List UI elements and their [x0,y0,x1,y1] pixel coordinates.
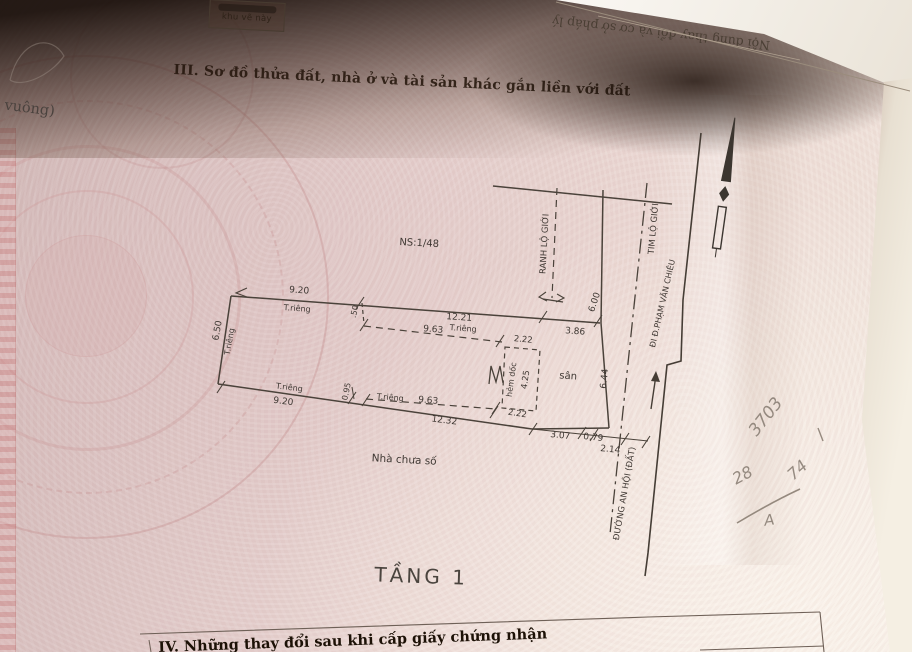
road-direction-label: ĐI Đ.PHẠM VĂN CHIÊU [646,258,678,348]
direction-arrow-shaft [651,375,656,409]
yard-bottom-edge [532,428,609,429]
road-edge-line [645,133,701,576]
section-iii-heading: III. Sơ đồ thửa đất, nhà ở và tài sản kh… [173,62,773,106]
boundary-to-road [532,429,648,441]
floor-caption: TẦNG 1 [373,561,468,589]
facing-page-white-edge [0,0,912,140]
emblem-watermark-ring [0,145,241,451]
emblem-watermark-core [25,235,147,357]
private-label-left: T.riêng [222,327,237,356]
dim-to-road-edge: 2.14 [600,444,621,456]
emblem-watermark-ring [70,0,254,169]
dim-top-seg2: 12.21 [446,312,472,324]
table-right-border [820,612,824,652]
dim-left-side: 6.50 [211,320,224,342]
paper-background [0,0,912,652]
certificate-photo: III. Sơ đồ thửa đất, nhà ở và tài sản kh… [0,0,912,652]
road-name-label: ĐƯỜNG AN HỘI (ĐẤT) [610,446,638,541]
photo-right-shadow [470,6,912,156]
road-boundary-end-bar [543,299,563,302]
neighbor-top-edge [493,186,672,204]
table-left-border [149,640,151,652]
back-page-upside-down-text: Nội dung thay đổi và cơ sở pháp lý [436,0,886,69]
emblem-watermark-ring [0,55,329,539]
north-arrow [711,117,740,258]
table-bottom-border [700,646,824,650]
dimension-ticks [217,297,650,448]
dim-bottom-total: 12.32 [431,414,458,427]
guilloche-texture [0,0,912,652]
corner-box-illegible-line [218,3,276,13]
dim-alley-width-top: 2.22 [513,334,533,346]
yard-right-edge [601,323,609,428]
steps-symbol [489,366,503,384]
pencil-tick [818,428,823,441]
plot-boundary [218,186,672,441]
dim-yard-bottom1: 3.07 [550,430,571,442]
dim-top-seg3: 3.86 [565,326,586,337]
yard-label: sân [559,369,577,382]
road-boundary-dashed-line [552,188,557,298]
section-divider-line [140,612,820,634]
section-iv-heading: IV. Những thay đổi sau khi cấp giấy chứn… [158,616,818,652]
dim-alley-length: 4.25 [520,370,533,390]
direction-arrow-head [651,371,660,382]
neighbor-house-label: NS:1/48 [399,237,439,250]
site-plan-drawing: NS:1/48 RANH LỘ GIỚI TIM LỘ GIỚI ĐI Đ.PH… [0,0,912,652]
private-label-inner-bottom: T.riêng [375,391,404,403]
dim-alley-width-bottom: 2.22 [507,408,527,421]
dashed-lines [352,183,647,534]
inner-wall-top [364,326,502,342]
jut-right-edge [601,190,603,323]
jog-tick [352,387,354,399]
plot-bottom-edge [218,384,532,429]
page-border-ornament [0,128,16,652]
handwriting-mark3: 74 [783,456,811,484]
road-centerline-label: TIM LỘ GIỚI [645,203,662,256]
private-label-bottom: T.riêng [274,380,303,393]
dim-top-seg1: 9.20 [289,285,310,296]
dim-inner-top: 9.63 [423,324,444,336]
handwriting-mark1: 3703 [745,394,787,440]
north-arrow-base [715,248,716,257]
north-arrow-tail [713,206,727,249]
setback-step [362,303,364,324]
handwriting-mark2: 28 [729,462,756,488]
dim-setback: .50 [349,304,360,318]
plot-left-edge [218,296,231,384]
plot-top-edge [231,296,600,323]
north-arrow-needle [722,117,740,182]
alley-outline [502,347,540,411]
page-edge-line-2 [598,16,800,60]
corner-box-label: khu vẽ này [210,11,284,25]
pencil-slash [737,489,800,523]
emblem-watermark-ring [0,100,284,494]
pencil-scribble [10,43,64,83]
corner-note-box: khu vẽ này [208,0,285,32]
road-boundary-label: RANH LỘ GIỚI [536,213,551,274]
page-edge-strip [850,78,912,652]
dim-yard-bottom2: 0.79 [583,432,604,444]
dim-yard-right: 6.44 [599,368,611,389]
emblem-watermark-ring [0,190,194,404]
dim-road-half-width: 6.00 [587,291,603,313]
left-edge-text-fragment: t vuông) [0,96,56,119]
page-edge-line [556,2,910,91]
road-centerline [610,183,647,534]
alley-label: hẻm dốc [504,362,519,398]
page-crease-highlight [655,95,805,565]
dim-inner-bottom: 9.63 [418,395,439,407]
handwriting-mark4: A [762,510,776,529]
photo-top-shadow [0,0,912,158]
north-arrow-diamond [719,186,730,201]
private-label-top1: T.riêng [282,302,311,314]
dim-bottom-jog: 0.95 [340,382,353,401]
dim-bottom-seg1: 9.20 [273,396,294,408]
house-label: Nhà chưa số [371,452,437,467]
dimension-arrows [236,288,564,302]
inner-wall-bottom [366,399,496,409]
private-label-top2: T.riêng [448,322,477,334]
